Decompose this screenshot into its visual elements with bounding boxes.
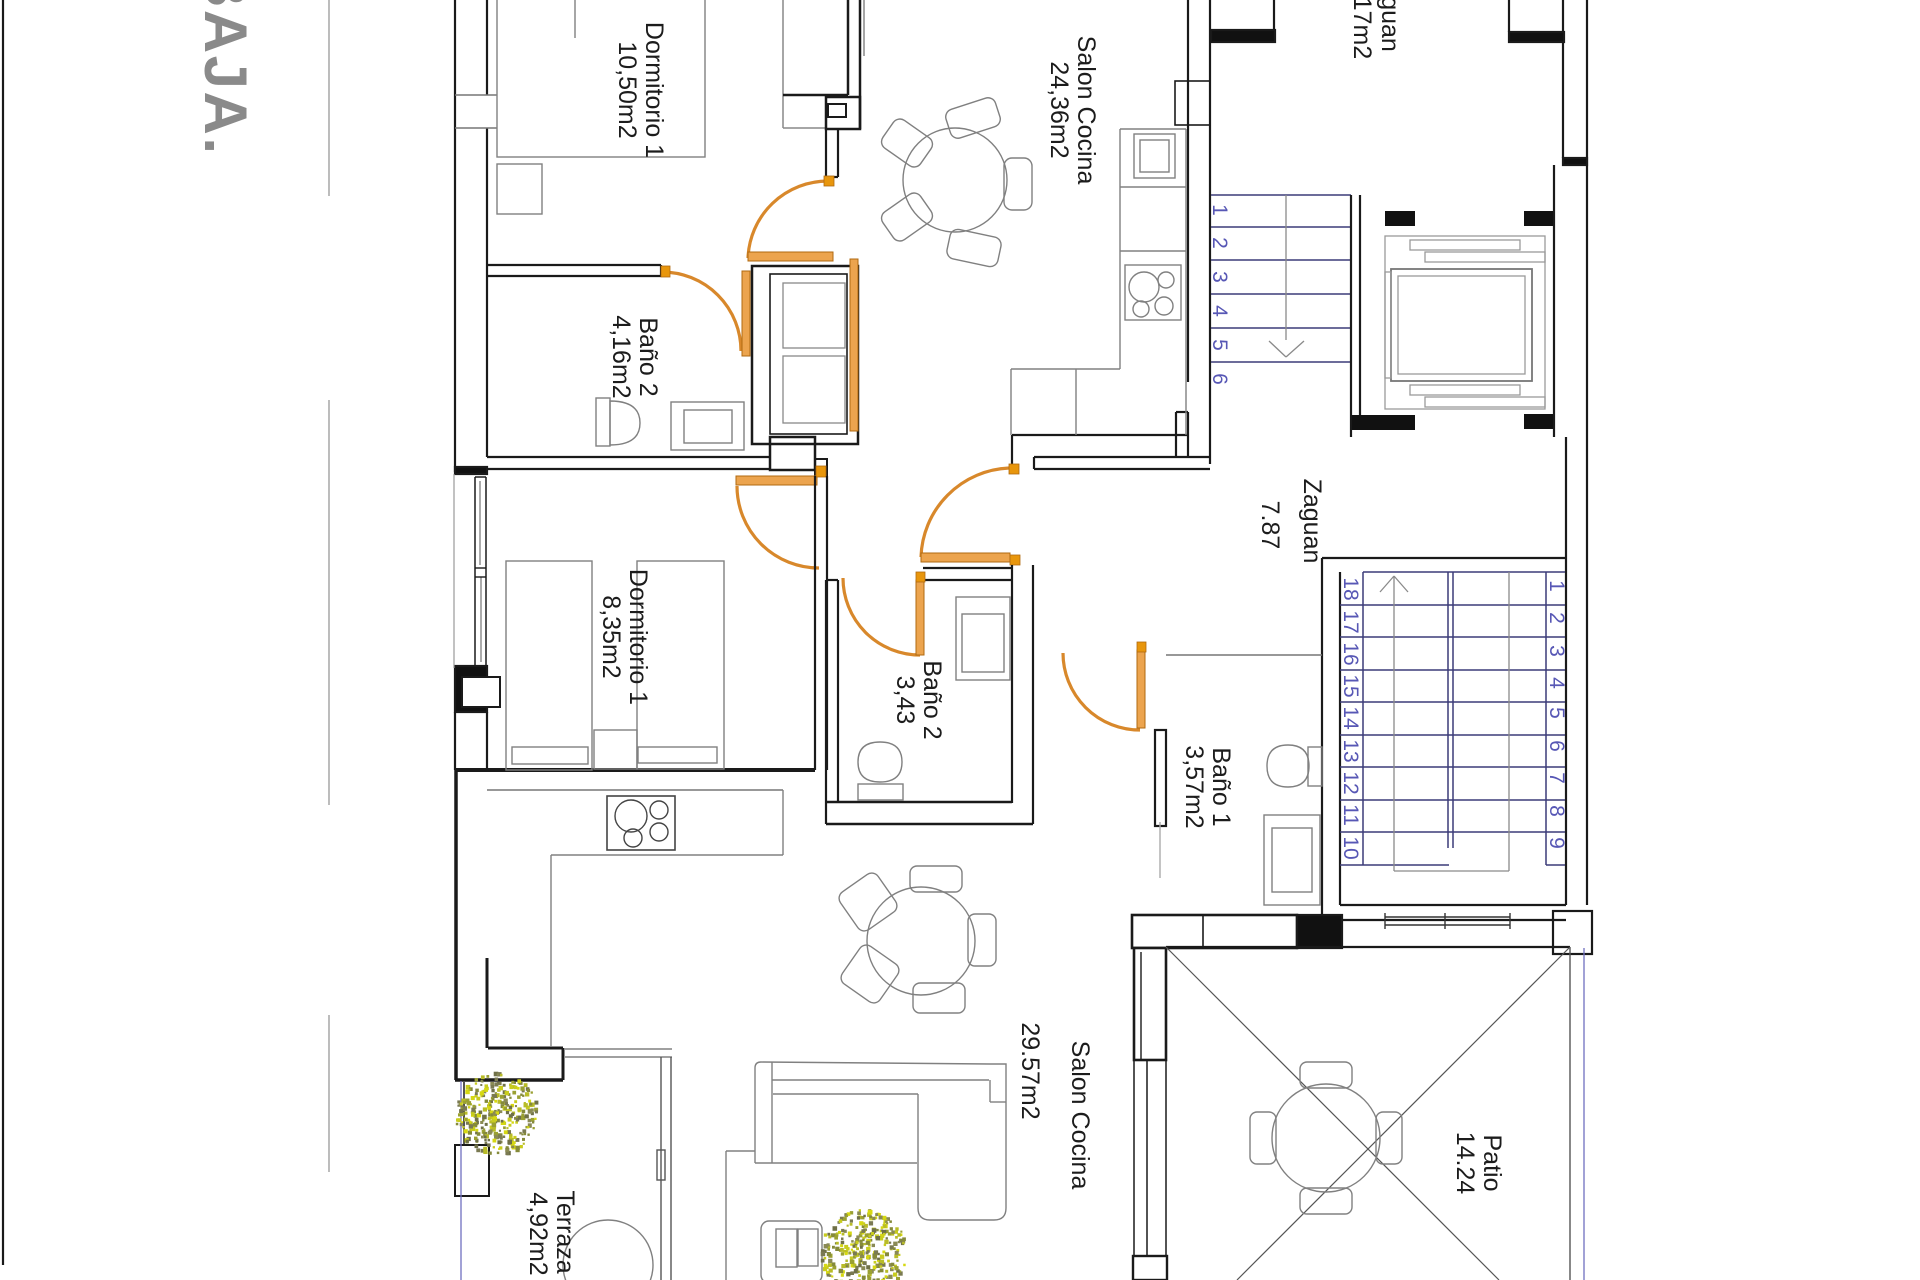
svg-text:2: 2 (1208, 237, 1231, 249)
svg-text:Terraza: Terraza (551, 1190, 579, 1273)
svg-text:Salon Cocina: Salon Cocina (1066, 1041, 1094, 1190)
svg-text:17m2: 17m2 (1348, 0, 1376, 59)
svg-text:17: 17 (1339, 610, 1362, 633)
svg-text:8: 8 (1545, 805, 1568, 817)
svg-text:Dormitorio 1: Dormitorio 1 (624, 569, 652, 705)
svg-text:6: 6 (1545, 740, 1568, 752)
svg-text:10,50m2: 10,50m2 (613, 41, 641, 138)
svg-text:16: 16 (1339, 642, 1362, 665)
svg-text:1: 1 (1208, 204, 1231, 216)
svg-text:5: 5 (1208, 339, 1231, 351)
svg-text:BAJA.: BAJA. (192, 0, 259, 154)
svg-text:24,36m2: 24,36m2 (1045, 61, 1073, 158)
svg-text:10: 10 (1339, 836, 1362, 859)
svg-text:2: 2 (1545, 612, 1568, 624)
svg-text:12: 12 (1339, 771, 1362, 794)
svg-text:18: 18 (1339, 577, 1362, 600)
svg-text:4,16m2: 4,16m2 (607, 315, 635, 398)
svg-text:4: 4 (1545, 677, 1568, 689)
svg-text:4: 4 (1208, 305, 1231, 317)
svg-text:13: 13 (1339, 739, 1362, 762)
svg-text:4,92m2: 4,92m2 (524, 1192, 552, 1275)
svg-text:3,43: 3,43 (891, 676, 919, 725)
svg-text:9: 9 (1545, 837, 1568, 849)
svg-text:15: 15 (1339, 674, 1362, 697)
svg-text:29.57m2: 29.57m2 (1016, 1022, 1044, 1119)
svg-text:Baño 2: Baño 2 (918, 660, 946, 739)
svg-text:3: 3 (1545, 645, 1568, 657)
svg-text:14.24: 14.24 (1451, 1132, 1479, 1195)
svg-text:Baño 1: Baño 1 (1207, 747, 1235, 826)
svg-text:Dormitorio 1: Dormitorio 1 (640, 22, 668, 158)
svg-text:3,57m2: 3,57m2 (1180, 745, 1208, 828)
svg-text:14: 14 (1339, 706, 1362, 730)
svg-text:3: 3 (1208, 271, 1231, 283)
svg-text:1: 1 (1545, 580, 1568, 592)
svg-text:6: 6 (1208, 373, 1231, 385)
svg-text:guan: guan (1376, 0, 1404, 52)
svg-text:11: 11 (1339, 804, 1362, 826)
svg-text:8,35m2: 8,35m2 (597, 595, 625, 678)
svg-text:Zaguan: Zaguan (1298, 479, 1326, 564)
svg-text:Patio: Patio (1478, 1135, 1506, 1192)
svg-text:5: 5 (1545, 707, 1568, 719)
svg-text:Salon Cocina: Salon Cocina (1072, 36, 1100, 185)
svg-text:7: 7 (1545, 772, 1568, 784)
svg-text:Baño 2: Baño 2 (634, 317, 662, 396)
svg-text:7.87: 7.87 (1256, 501, 1284, 550)
